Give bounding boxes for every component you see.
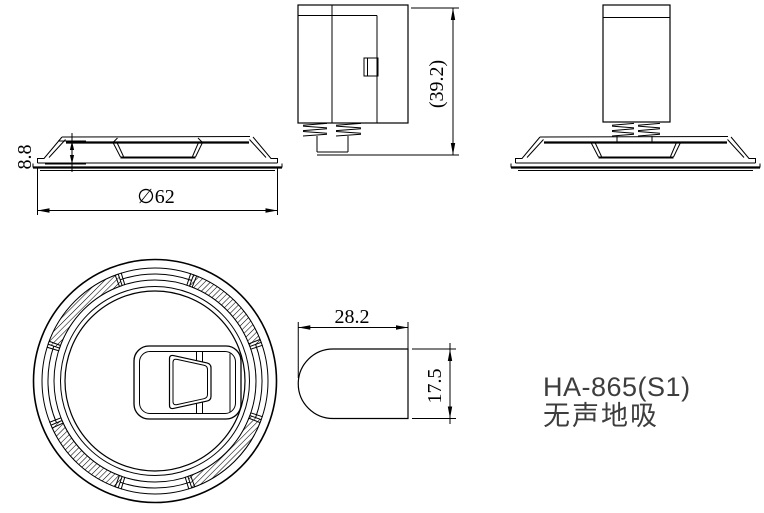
arrowhead: [38, 208, 50, 212]
grip-arc-bottom-right: [188, 416, 261, 488]
assembled-side-view: [511, 5, 760, 171]
thread-hatching: [303, 123, 660, 136]
base-side-view: [33, 137, 282, 171]
dimension-label-overall-height: (39.2): [427, 39, 449, 129]
arrowhead: [451, 143, 455, 155]
product-name: 无声地吸: [543, 402, 691, 431]
arrowhead: [266, 208, 278, 212]
mounting-stem: [317, 136, 348, 152]
grip-arc-bottom-left: [51, 421, 122, 488]
latch-hook: [170, 355, 212, 408]
dimension-label-plate-width: 28.2: [302, 307, 402, 327]
dimension-label-plate-height: 17.5: [425, 346, 447, 426]
latch-keeper: [134, 346, 241, 419]
base-top-view: [34, 260, 277, 503]
arrowhead: [451, 8, 455, 20]
release-button: [364, 58, 378, 76]
dimension-label-base-diameter: ∅62: [106, 187, 206, 207]
arrowhead: [448, 349, 452, 361]
strike-plate-side-view: [298, 349, 408, 419]
drawing-linework: [0, 0, 764, 513]
title-block: HA-865(S1) 无声地吸: [543, 373, 691, 431]
dimension-label-base-height: 8.8: [15, 117, 37, 197]
technical-drawing-canvas: 8.8 ∅62 (39.2) 28.2 17.5 HA-865(S1) 无声地吸: [0, 0, 764, 513]
product-model: HA-865(S1): [543, 373, 691, 402]
arrowhead: [448, 407, 452, 419]
grip-arc-top-right: [190, 275, 262, 347]
grip-arc-top-left: [48, 274, 122, 348]
dimension-lines: [38, 8, 460, 424]
